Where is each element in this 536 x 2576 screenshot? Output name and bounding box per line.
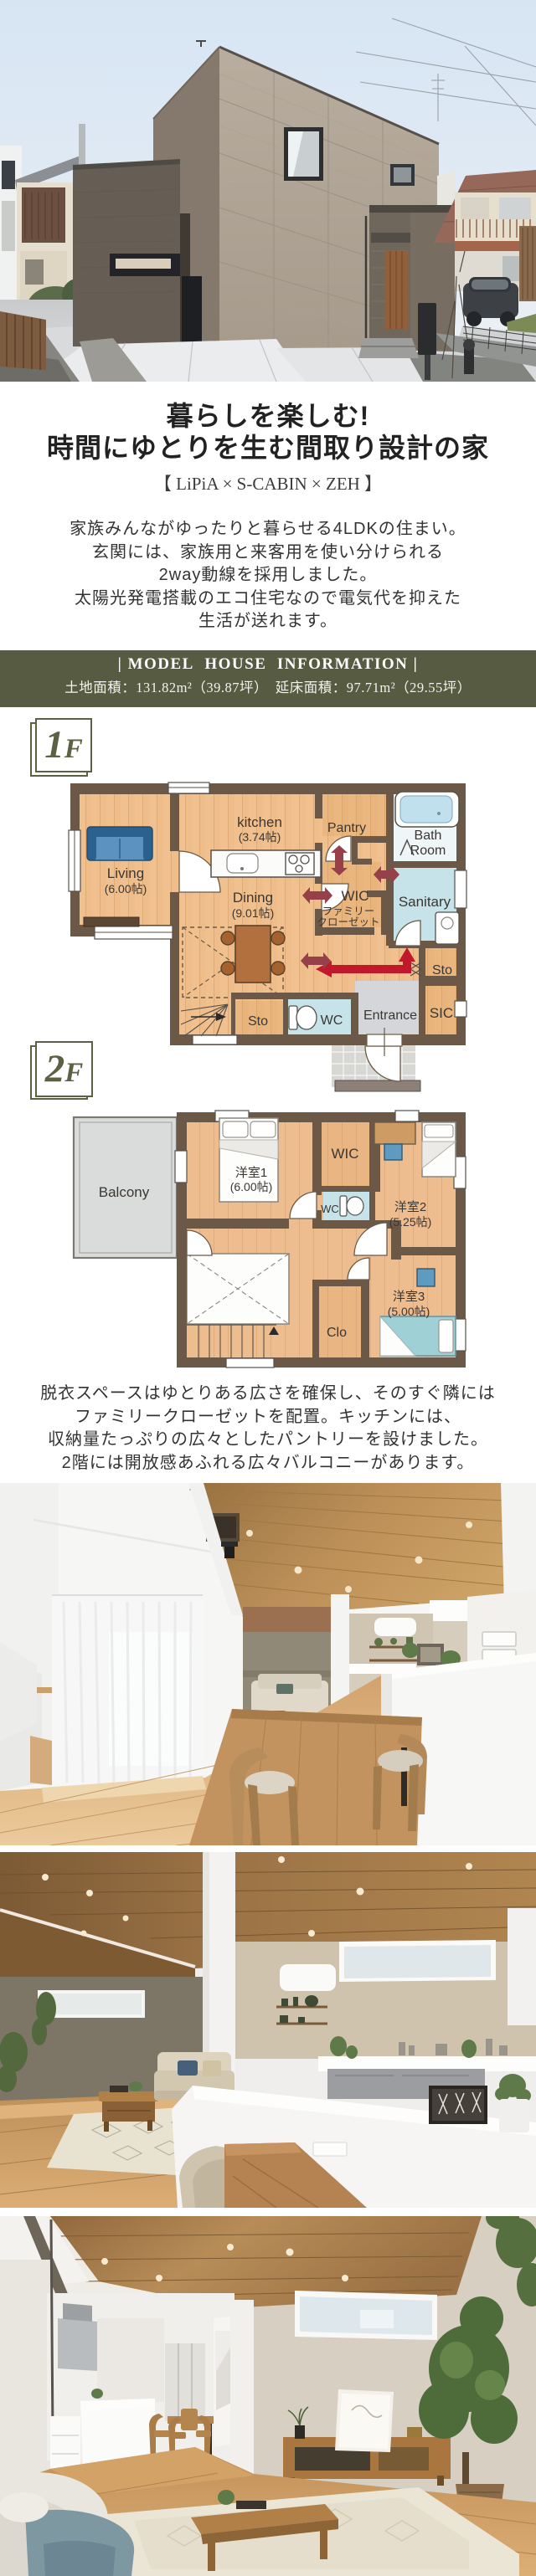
svg-text:WC: WC [321,1203,339,1215]
svg-text:WIC: WIC [341,888,368,904]
svg-text:SIC: SIC [430,1005,453,1021]
svg-text:(5.00帖): (5.00帖) [388,1305,430,1318]
svg-text:WC: WC [321,1013,343,1028]
svg-text:Pantry: Pantry [327,821,366,835]
svg-text:Bath: Bath [415,829,442,843]
svg-text:(3.74帖): (3.74帖) [239,830,281,844]
svg-text:(6.00帖): (6.00帖) [230,1180,273,1193]
svg-text:(9.01帖): (9.01帖) [232,906,275,920]
svg-text:クローゼット: クローゼット [317,916,379,928]
svg-text:洋室2: 洋室2 [394,1200,426,1214]
svg-text:Sanitary: Sanitary [399,894,451,910]
svg-text:洋室1: 洋室1 [235,1166,267,1180]
svg-text:Sto: Sto [248,1014,268,1029]
svg-text:Room: Room [410,844,446,858]
svg-text:Entrance: Entrance [363,1008,417,1023]
svg-text:kitchen: kitchen [237,814,282,830]
svg-text:ファミリー: ファミリー [322,906,375,917]
svg-text:Sto: Sto [432,963,452,978]
svg-text:洋室3: 洋室3 [393,1290,425,1304]
svg-text:Balcony: Balcony [99,1184,150,1200]
svg-text:Living: Living [107,865,144,881]
svg-text:Clo: Clo [327,1326,347,1340]
svg-text:Dining: Dining [233,890,273,906]
svg-text:(5.25帖): (5.25帖) [389,1215,432,1229]
svg-text:WIC: WIC [331,1146,358,1162]
svg-text:(6.00帖): (6.00帖) [105,882,147,895]
